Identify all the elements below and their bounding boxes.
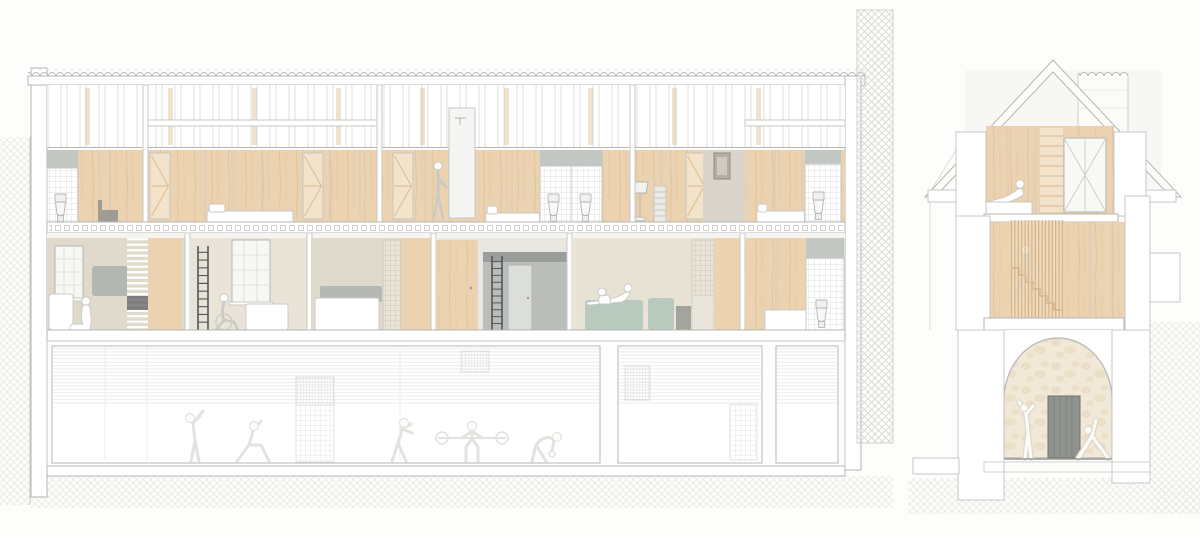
living-room-e [572,238,740,330]
upper-floor-slab [47,222,845,233]
partition-wall [740,233,745,330]
vent-grille [461,351,489,372]
roof-tile-edge [28,69,865,76]
party-wall-hatch [857,10,893,443]
pier-left [958,330,1004,500]
foundation-ground-hatch [908,478,1200,514]
armchair [49,294,73,330]
partition-wall [567,233,572,330]
wall-left [956,216,990,330]
wardrobe-door [303,153,323,219]
bathroom [540,150,602,222]
arched-entry-level [913,330,1150,500]
partition-wall [185,233,190,330]
loft-level [956,126,1146,222]
living-room-a [47,238,185,330]
basement-floor-slab [47,466,845,476]
interior-door [508,265,532,330]
bathroom [806,238,844,330]
bathroom [805,150,841,222]
gym-room-large [52,346,600,463]
window [52,246,86,301]
foundation-ledge [913,458,959,474]
gym-room-small [776,346,838,463]
timber-slat-screen [1010,220,1063,320]
lattice-shelf [692,240,714,330]
side-chair [676,306,691,330]
loft-platform [984,202,1032,215]
bathroom [47,150,78,222]
sofa [315,298,379,330]
attic-stud-wall [47,85,845,148]
wardrobe [401,238,431,330]
climbing-frame [296,377,334,462]
bench [765,310,809,330]
living-level [47,233,845,330]
wardrobe-door [393,153,413,219]
basement-gym [47,341,845,476]
wood-door [436,240,478,330]
window [229,240,273,305]
end-section-drawing [857,10,1200,514]
partition-wall [431,233,436,330]
bulkhead [483,252,567,262]
shelf-stack [654,186,666,222]
attic-beam [143,120,377,126]
sofa [246,304,288,330]
stair-floor-slab [984,318,1124,330]
wardrobe [148,238,182,330]
picture-frame-wall [703,150,745,222]
x-braced-window [1064,138,1106,212]
vent-grille [625,366,650,400]
left-ground-hatch [0,137,30,505]
lattice-rack [730,404,757,460]
slat-screen [127,238,148,330]
street-ledge [1150,253,1180,302]
loft-stair [1040,128,1063,212]
foundation-ground-hatch [31,476,893,508]
gym-room-mid [618,346,762,463]
wall-right [1125,196,1150,330]
armchair [648,298,674,330]
lattice-screen [383,240,401,330]
hall-room-d [436,238,567,330]
wardrobe-door [150,153,170,219]
suite-room-f [745,238,845,330]
section-drawing-canvas [0,0,1200,535]
wardrobe [714,238,740,330]
wall-left [956,132,986,216]
living-room-b [190,238,307,330]
architectural-section-sheet [0,0,1200,535]
roof-slab [28,76,865,85]
longitudinal-section-drawing [0,68,893,508]
left-party-wall [31,68,47,497]
entry-door [1048,396,1080,458]
shower-niche [449,108,475,218]
living-room-c [311,238,431,330]
living-floor-slab [47,330,845,341]
attic-beam [745,120,845,126]
pier-right [1112,330,1150,483]
